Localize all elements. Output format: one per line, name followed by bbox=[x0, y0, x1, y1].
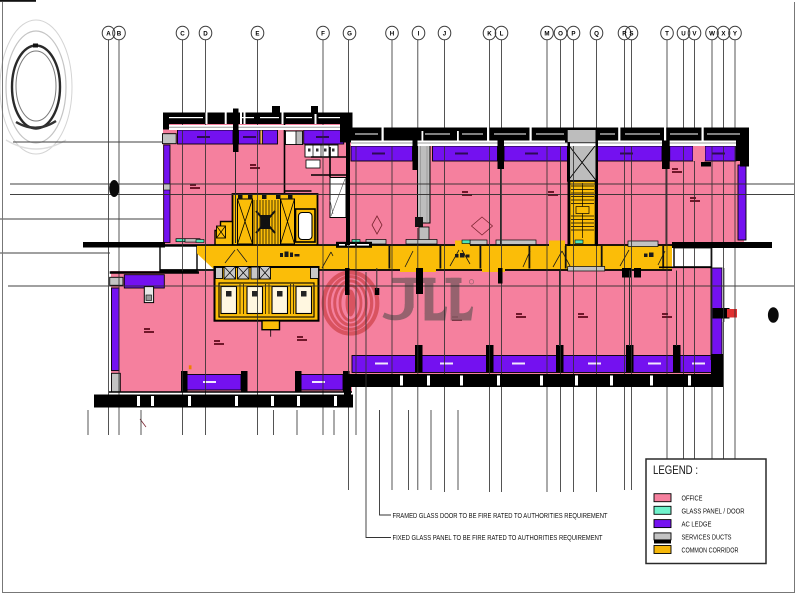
svg-text:O: O bbox=[558, 31, 563, 38]
svg-text:L: L bbox=[500, 31, 504, 38]
svg-text:T: T bbox=[665, 31, 669, 38]
svg-text:S: S bbox=[629, 31, 633, 38]
svg-text:C: C bbox=[180, 31, 185, 38]
svg-text:H: H bbox=[390, 31, 395, 38]
svg-text:P: P bbox=[571, 31, 575, 38]
svg-text:U: U bbox=[681, 31, 686, 38]
svg-text:D: D bbox=[203, 31, 208, 38]
svg-text:F: F bbox=[321, 31, 325, 38]
svg-text:I: I bbox=[418, 31, 420, 38]
svg-text:B: B bbox=[117, 31, 122, 38]
svg-text:SERVICES DUCTS: SERVICES DUCTS bbox=[682, 533, 732, 542]
svg-text:OFFICE: OFFICE bbox=[682, 494, 703, 503]
svg-text:A: A bbox=[106, 31, 111, 38]
svg-text:R: R bbox=[622, 31, 627, 38]
svg-text:E: E bbox=[255, 31, 259, 38]
svg-text:K: K bbox=[487, 31, 492, 38]
svg-text:J: J bbox=[443, 31, 447, 38]
svg-text:M: M bbox=[544, 31, 549, 38]
svg-text:FIXED GLASS PANEL TO BE FIRE R: FIXED GLASS PANEL TO BE FIRE RATED TO AU… bbox=[393, 535, 604, 542]
svg-text:GLASS PANEL / DOOR: GLASS PANEL / DOOR bbox=[682, 507, 745, 516]
svg-text:COMMON CORRIDOR: COMMON CORRIDOR bbox=[682, 546, 739, 555]
svg-text:G: G bbox=[347, 31, 352, 38]
svg-text:W: W bbox=[709, 31, 715, 38]
svg-text:Q: Q bbox=[594, 31, 599, 38]
svg-text:LEGEND :: LEGEND : bbox=[653, 463, 698, 477]
svg-text:AC LEDGE: AC LEDGE bbox=[682, 520, 712, 529]
svg-text:FRAMED GLASS DOOR TO BE FIRE R: FRAMED GLASS DOOR TO BE FIRE RATED TO AU… bbox=[393, 513, 609, 520]
